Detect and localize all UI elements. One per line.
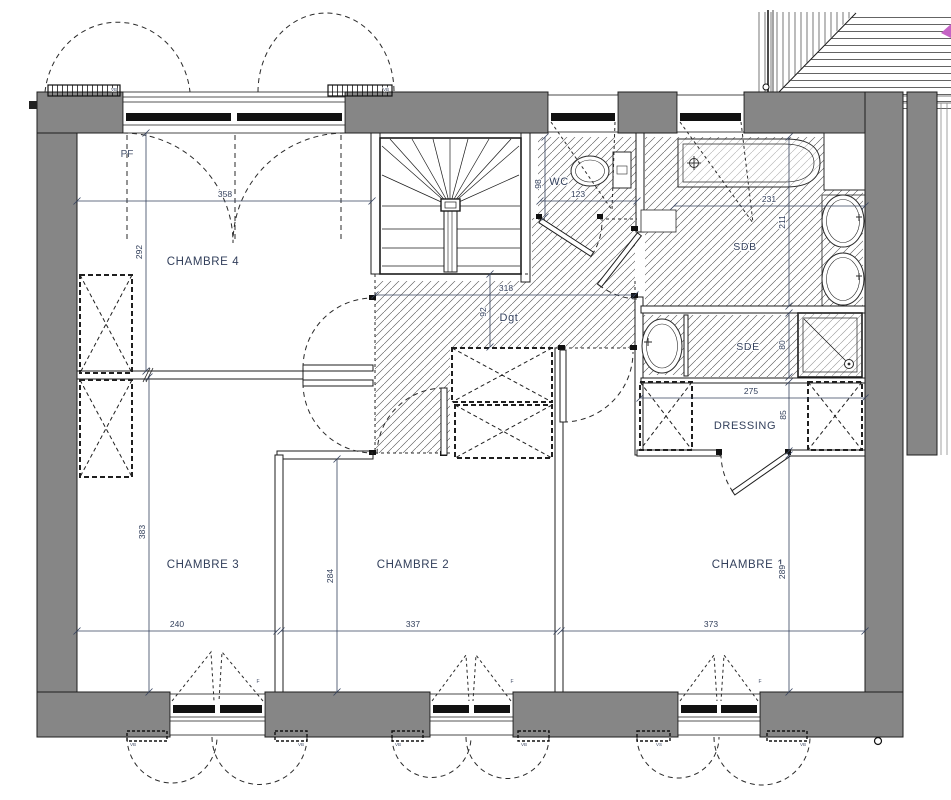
wall-top-mid: [345, 92, 548, 133]
washbasin-2: [822, 253, 864, 305]
corner-marker: [875, 738, 882, 745]
toilet-bowl: [571, 156, 609, 186]
dimension-value: 98: [533, 179, 543, 189]
sdb-cabinet: [824, 133, 865, 190]
wall-bottom-4: [760, 692, 903, 737]
wall-marker-left: [29, 101, 37, 109]
corridor-left-hatch: [375, 348, 450, 453]
room-label-degagement: Dgt: [500, 312, 519, 324]
sdb-niche: [641, 210, 676, 232]
room-label-chambre-4: CHAMBRE 4: [167, 256, 240, 268]
washbasin-1: [822, 195, 864, 247]
wardrobe-dressing-right: [808, 382, 862, 450]
dimension-value: 289: [777, 565, 787, 579]
room-label-wc: WC: [549, 176, 569, 188]
dimension-value: 85: [778, 410, 788, 420]
wall-bottom-3: [513, 692, 678, 737]
wall-right: [865, 92, 903, 737]
wall-left: [37, 92, 77, 737]
staircase: [380, 138, 521, 274]
dimension-value: 318: [499, 283, 513, 293]
annotation-vb: VB: [111, 87, 117, 92]
dimension-value: 284: [325, 569, 335, 583]
dimension-value: 358: [218, 189, 232, 199]
wall-sde-dressing-left: [635, 297, 643, 455]
dimension-value: 373: [704, 619, 718, 629]
shutter-box-top-left: [48, 85, 120, 96]
annotation-f: F: [510, 679, 513, 685]
wall-top-corner: [37, 92, 123, 133]
sde-counter-edge: [684, 315, 688, 376]
wall-nook-bottom: [277, 451, 373, 459]
wardrobe-ch4: [80, 275, 132, 373]
room-label-chambre-3: CHAMBRE 3: [167, 559, 240, 571]
dimension-value: 292: [134, 245, 144, 259]
wardrobe-dressing-left: [640, 382, 692, 450]
annotation-vb: VB: [800, 742, 806, 747]
door-chambre-1: [560, 350, 633, 422]
room-label-chambre-1: CHAMBRE 1: [712, 559, 785, 571]
floor-plan-drawing: CHAMBRE 4CHAMBRE 3CHAMBRE 2CHAMBRE 1WCSD…: [0, 0, 951, 800]
closet-corridor: [452, 348, 552, 402]
shutter-arc-1: [45, 22, 190, 92]
dimension-value: 275: [744, 386, 758, 396]
toilet-tank: [613, 152, 631, 188]
roof-post-marker: [763, 84, 769, 90]
annotation-vs: VS: [656, 742, 662, 747]
stair-newel: [441, 199, 460, 211]
dimension-value: 240: [170, 619, 184, 629]
stair-wall-right: [521, 133, 530, 282]
wall-right-outer-strip: [907, 92, 937, 455]
wardrobe-ch3: [80, 380, 132, 477]
wall-bottom-1: [37, 692, 170, 737]
window-pf-chambre4: [123, 92, 345, 243]
dimension-value: 80: [777, 340, 787, 350]
annotation-vb: VB: [298, 742, 304, 747]
wall-sdb-sde: [641, 306, 865, 313]
dimension-value: 92: [478, 307, 488, 317]
annotation-pf: PF: [121, 149, 134, 160]
dimension-value: 123: [571, 189, 585, 199]
dimension-value: 383: [137, 525, 147, 539]
shutter-arc-2: [258, 13, 394, 92]
room-label-dressing: DRESSING: [714, 420, 776, 432]
closet-ch2: [455, 405, 552, 458]
door-chambre-3: [303, 380, 373, 453]
floor-plan-page: CHAMBRE 4CHAMBRE 3CHAMBRE 2CHAMBRE 1WCSD…: [0, 0, 951, 800]
wall-top-between-windows: [618, 92, 677, 133]
room-label-sde: SDE: [736, 341, 759, 353]
annotation-vb: VB: [383, 87, 389, 92]
annotation-f: F: [758, 679, 761, 685]
annotation-vb: VB: [130, 742, 136, 747]
door-chambre-4: [303, 298, 373, 371]
wall-bottom-2: [265, 692, 430, 737]
dimension-value: 337: [406, 619, 420, 629]
door-dressing: [721, 452, 790, 495]
annotation-vb: VB: [395, 742, 401, 747]
dimension-value: 211: [777, 215, 787, 229]
dimension-value: 231: [762, 194, 776, 204]
shower-drain-dot: [848, 363, 851, 366]
annotation-f: F: [256, 679, 259, 685]
annotation-vb: VB: [521, 742, 527, 747]
stair-stringer: [444, 206, 457, 272]
stair-wall-left: [371, 133, 380, 274]
room-label-sdb: SDB: [733, 241, 756, 253]
room-label-chambre-2: CHAMBRE 2: [377, 559, 450, 571]
wall-ch3-ch2: [275, 455, 283, 692]
